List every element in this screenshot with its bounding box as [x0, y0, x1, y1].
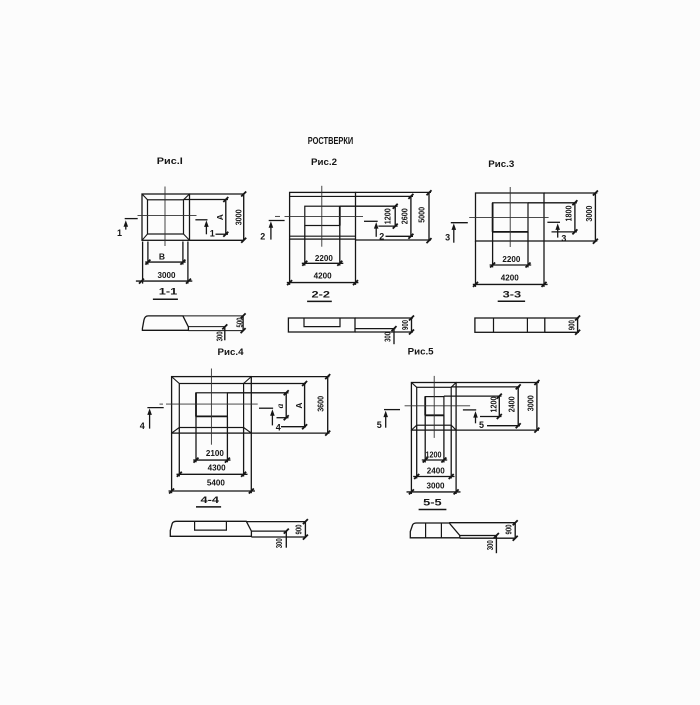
svg-text:3000: 3000 — [427, 482, 446, 491]
svg-text:5-5: 5-5 — [423, 498, 442, 509]
svg-text:1200: 1200 — [426, 451, 443, 460]
svg-text:3000: 3000 — [526, 395, 535, 412]
svg-text:1200: 1200 — [490, 396, 499, 413]
svg-text:500: 500 — [236, 317, 245, 328]
svg-text:3600: 3600 — [317, 395, 326, 412]
svg-text:5: 5 — [479, 420, 484, 430]
svg-text:5000: 5000 — [418, 206, 427, 223]
svg-text:Рис.5: Рис.5 — [408, 347, 435, 358]
svg-text:1-1: 1-1 — [159, 286, 178, 297]
svg-text:300: 300 — [215, 331, 224, 341]
svg-text:3000: 3000 — [158, 271, 177, 280]
svg-text:1: 1 — [210, 228, 215, 238]
svg-text:900: 900 — [401, 319, 410, 330]
svg-text:1: 1 — [117, 228, 122, 238]
svg-text:В: В — [159, 251, 165, 261]
svg-text:3-3: 3-3 — [503, 290, 522, 301]
svg-text:А: А — [294, 403, 304, 409]
svg-text:3: 3 — [561, 233, 566, 243]
svg-text:900: 900 — [505, 524, 514, 535]
svg-text:5400: 5400 — [207, 479, 226, 488]
svg-text:1200: 1200 — [384, 208, 393, 225]
svg-text:300: 300 — [275, 538, 284, 548]
svg-text:3000: 3000 — [235, 209, 244, 226]
svg-text:3000: 3000 — [585, 205, 594, 222]
svg-text:1800: 1800 — [565, 205, 574, 222]
svg-text:4: 4 — [276, 422, 281, 432]
svg-text:4: 4 — [140, 421, 145, 431]
svg-text:A: A — [215, 214, 225, 220]
svg-text:3: 3 — [445, 232, 450, 242]
svg-text:2200: 2200 — [502, 255, 521, 264]
svg-text:a: a — [275, 403, 285, 408]
svg-text:Рис.4: Рис.4 — [218, 347, 245, 358]
svg-text:4-4: 4-4 — [201, 495, 220, 506]
svg-text:300: 300 — [383, 331, 392, 341]
svg-text:Рис.I: Рис.I — [157, 156, 183, 167]
svg-text:2400: 2400 — [427, 467, 446, 476]
svg-text:900: 900 — [295, 524, 304, 535]
svg-text:Рис.3: Рис.3 — [488, 159, 514, 170]
svg-text:2600: 2600 — [401, 208, 410, 225]
svg-text:5: 5 — [377, 420, 382, 430]
svg-text:Рис.2: Рис.2 — [311, 157, 337, 168]
svg-text:4300: 4300 — [208, 463, 227, 472]
svg-text:300: 300 — [486, 540, 495, 550]
svg-text:2200: 2200 — [315, 254, 334, 263]
svg-text:2400: 2400 — [508, 396, 517, 413]
svg-text:2100: 2100 — [206, 449, 225, 458]
svg-text:2-2: 2-2 — [312, 289, 331, 300]
svg-text:РОСТВЕРКИ: РОСТВЕРКИ — [308, 136, 354, 147]
svg-text:4200: 4200 — [501, 273, 520, 282]
svg-text:2: 2 — [260, 232, 265, 242]
svg-text:4200: 4200 — [314, 272, 333, 281]
svg-text:900: 900 — [567, 320, 576, 331]
